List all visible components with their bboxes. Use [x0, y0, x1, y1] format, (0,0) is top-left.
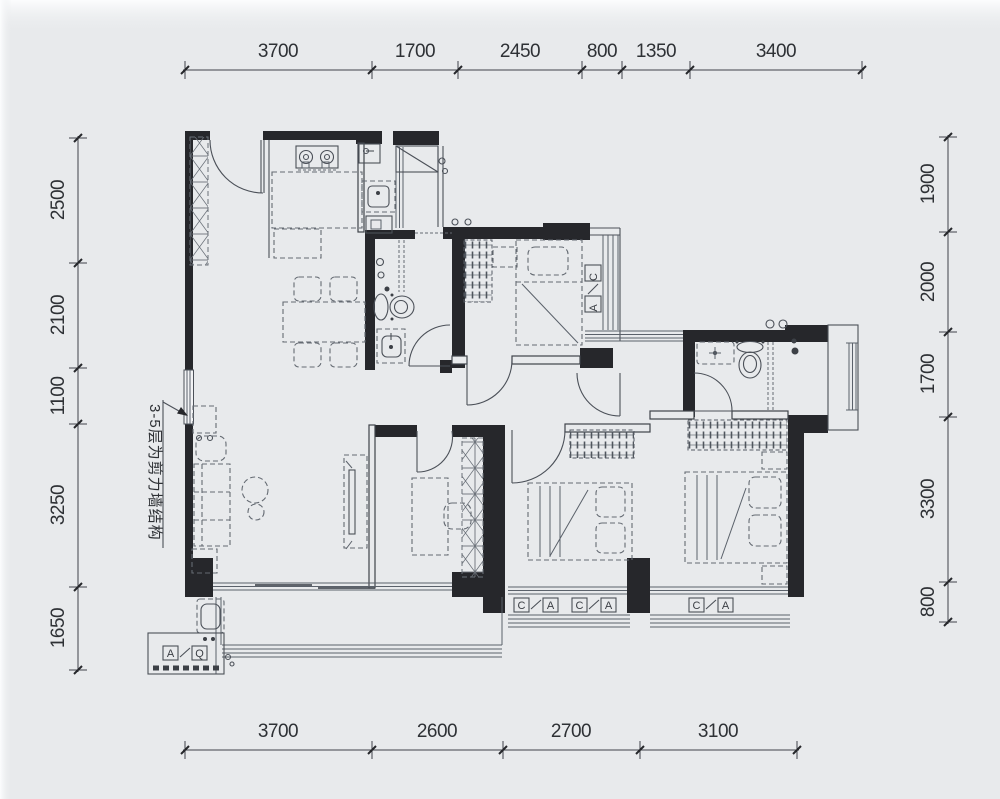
dim-label: 1900	[918, 164, 939, 204]
window-tag-letter: C	[576, 600, 584, 612]
window-tag-letter: C	[693, 600, 701, 612]
dim-label: 3700	[258, 721, 298, 742]
dim-label: 800	[587, 41, 617, 62]
dim-label: 2100	[48, 295, 69, 335]
floor-plan-page: 3700 1700 2450 800 1350 3400 3700 2600 2…	[0, 0, 1000, 799]
window-tag-letter: C	[588, 273, 600, 281]
page-edge-fade-top	[0, 0, 1000, 34]
dim-label: 2500	[48, 180, 69, 220]
dim-label: 1650	[48, 608, 69, 648]
shower-head-icon	[385, 287, 390, 292]
dim-label: 2700	[551, 721, 591, 742]
dim-label: 3100	[698, 721, 738, 742]
wardrobe	[462, 438, 483, 577]
window-tag-letter: A	[722, 600, 730, 612]
page-background	[0, 0, 1000, 799]
wardrobe	[464, 240, 492, 302]
shower-head-icon	[792, 348, 799, 355]
window-tag-letter: A	[605, 600, 613, 612]
dim-label: 1350	[636, 41, 676, 62]
wardrobe	[688, 420, 787, 450]
dim-label: 3700	[258, 41, 298, 62]
window-tag-letter: A	[547, 600, 555, 612]
dim-label: 2450	[500, 41, 540, 62]
balcony-tag-letter: Q	[195, 648, 204, 660]
window-living-left	[184, 370, 194, 424]
structural-note-text: 3-5层为剪力墙结构	[146, 404, 163, 541]
entry-cabinet	[190, 137, 208, 265]
window-tag-letter: C	[518, 600, 526, 612]
dim-label: 800	[918, 587, 939, 617]
dim-label: 1100	[48, 377, 69, 416]
dim-label: 2000	[918, 262, 939, 302]
wardrobe	[570, 430, 634, 458]
dim-label: 1700	[918, 354, 939, 394]
dim-label: 3400	[756, 41, 796, 62]
floor-plan-drawing: 3700 1700 2450 800 1350 3400 3700 2600 2…	[0, 0, 1000, 799]
dim-label: 1700	[395, 41, 435, 62]
dim-label: 2600	[417, 721, 457, 742]
page-edge-fade-left	[0, 0, 12, 799]
balcony-tag-letter: A	[167, 648, 175, 660]
window-tag-letter: A	[588, 304, 600, 312]
dim-label: 3300	[918, 479, 939, 519]
dim-label: 3250	[48, 485, 69, 525]
